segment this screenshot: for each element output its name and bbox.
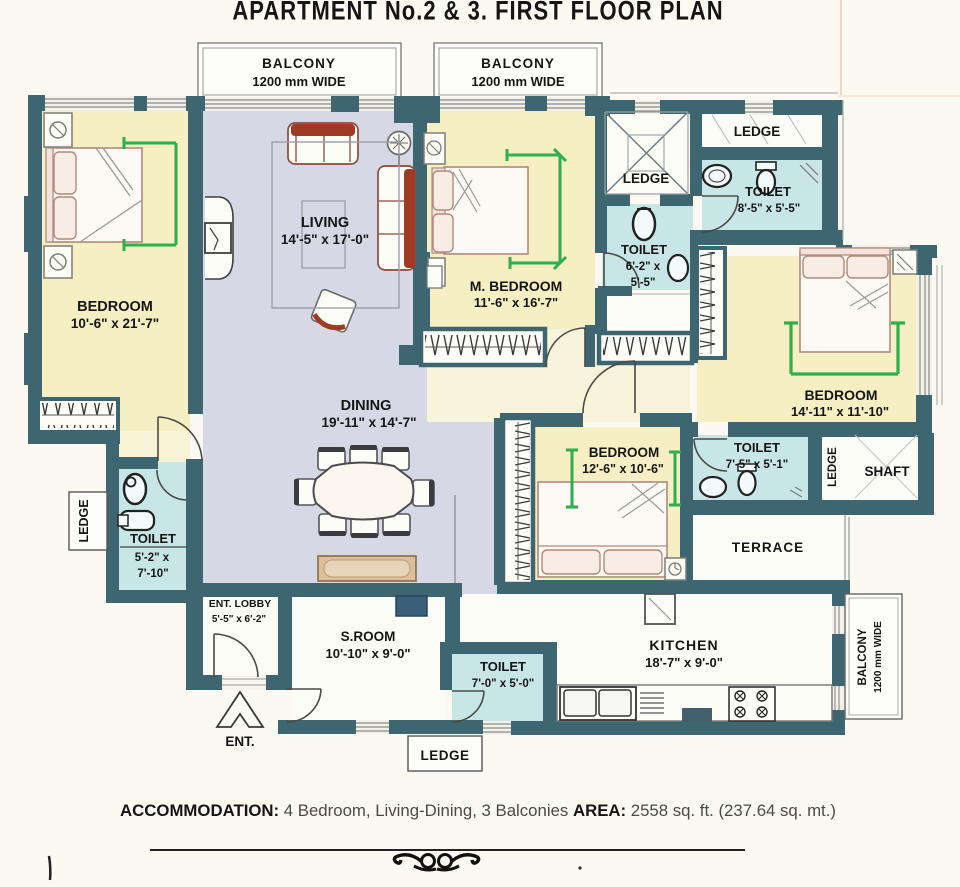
svg-text:14'-11" x 11'-10": 14'-11" x 11'-10" — [791, 404, 889, 419]
svg-text:1200 mm WIDE: 1200 mm WIDE — [252, 74, 346, 89]
svg-text:KITCHEN: KITCHEN — [649, 637, 718, 653]
svg-text:10'-6" x 21'-7": 10'-6" x 21'-7" — [71, 316, 159, 331]
svg-text:TOILET: TOILET — [745, 184, 791, 199]
svg-text:10'-10" x 9'-0": 10'-10" x 9'-0" — [325, 646, 410, 661]
svg-text:ENT.: ENT. — [225, 734, 254, 749]
svg-text:6'-2" x: 6'-2" x — [626, 261, 661, 273]
svg-text:LEDGE: LEDGE — [420, 748, 469, 763]
svg-text:LEDGE: LEDGE — [77, 499, 91, 542]
svg-text:M. BEDROOM: M. BEDROOM — [470, 278, 563, 294]
svg-text:BEDROOM: BEDROOM — [804, 387, 877, 403]
svg-text:18'-7" x 9'-0": 18'-7" x 9'-0" — [645, 655, 723, 670]
svg-text:BEDROOM: BEDROOM — [589, 445, 660, 460]
svg-text:APARTMENT No.2 & 3. FIRST FLOO: APARTMENT No.2 & 3. FIRST FLOOR PLAN — [232, 0, 723, 26]
svg-text:LEDGE: LEDGE — [623, 171, 670, 186]
svg-text:DINING: DINING — [341, 398, 392, 414]
svg-text:TOILET: TOILET — [621, 242, 667, 257]
svg-text:BEDROOM: BEDROOM — [77, 299, 153, 315]
svg-text:7'-10": 7'-10" — [137, 568, 168, 580]
svg-text:12'-6" x 10'-6": 12'-6" x 10'-6" — [582, 462, 664, 476]
svg-text:19'-11" x 14'-7": 19'-11" x 14'-7" — [321, 415, 416, 430]
svg-text:5'-2" x: 5'-2" x — [135, 552, 170, 564]
svg-text:TERRACE: TERRACE — [732, 540, 804, 555]
svg-text:LIVING: LIVING — [301, 215, 349, 231]
svg-text:SHAFT: SHAFT — [865, 464, 911, 479]
svg-text:7'-0" x 5'-0": 7'-0" x 5'-0" — [472, 678, 534, 690]
svg-text:S.ROOM: S.ROOM — [341, 629, 396, 644]
svg-text:5'-5": 5'-5" — [631, 277, 656, 289]
svg-text:TOILET: TOILET — [480, 659, 526, 674]
svg-text:ACCOMMODATION: 4 Bedroom, Livi: ACCOMMODATION: 4 Bedroom, Living-Dining,… — [120, 801, 836, 820]
svg-text:14'-5" x 17'-0": 14'-5" x 17'-0" — [281, 232, 369, 247]
svg-text:1200 mm WIDE: 1200 mm WIDE — [471, 74, 565, 89]
svg-text:ENT. LOBBY: ENT. LOBBY — [209, 598, 271, 610]
svg-text:BALCONY: BALCONY — [857, 628, 869, 685]
svg-text:TOILET: TOILET — [130, 531, 176, 546]
svg-text:1200 mm WIDE: 1200 mm WIDE — [873, 621, 884, 693]
svg-text:11'-6" x 16'-7": 11'-6" x 16'-7" — [474, 295, 558, 310]
svg-text:LEDGE: LEDGE — [827, 447, 839, 487]
svg-text:5'-5" x 6'-2": 5'-5" x 6'-2" — [212, 614, 267, 625]
svg-text:TOILET: TOILET — [734, 440, 780, 455]
svg-text:8'-5" x 5'-5": 8'-5" x 5'-5" — [738, 203, 800, 215]
svg-text:BALCONY: BALCONY — [481, 56, 555, 71]
svg-text:7'-5" x 5'-1": 7'-5" x 5'-1" — [726, 459, 788, 471]
svg-text:LEDGE: LEDGE — [734, 124, 781, 139]
svg-text:BALCONY: BALCONY — [262, 56, 336, 71]
